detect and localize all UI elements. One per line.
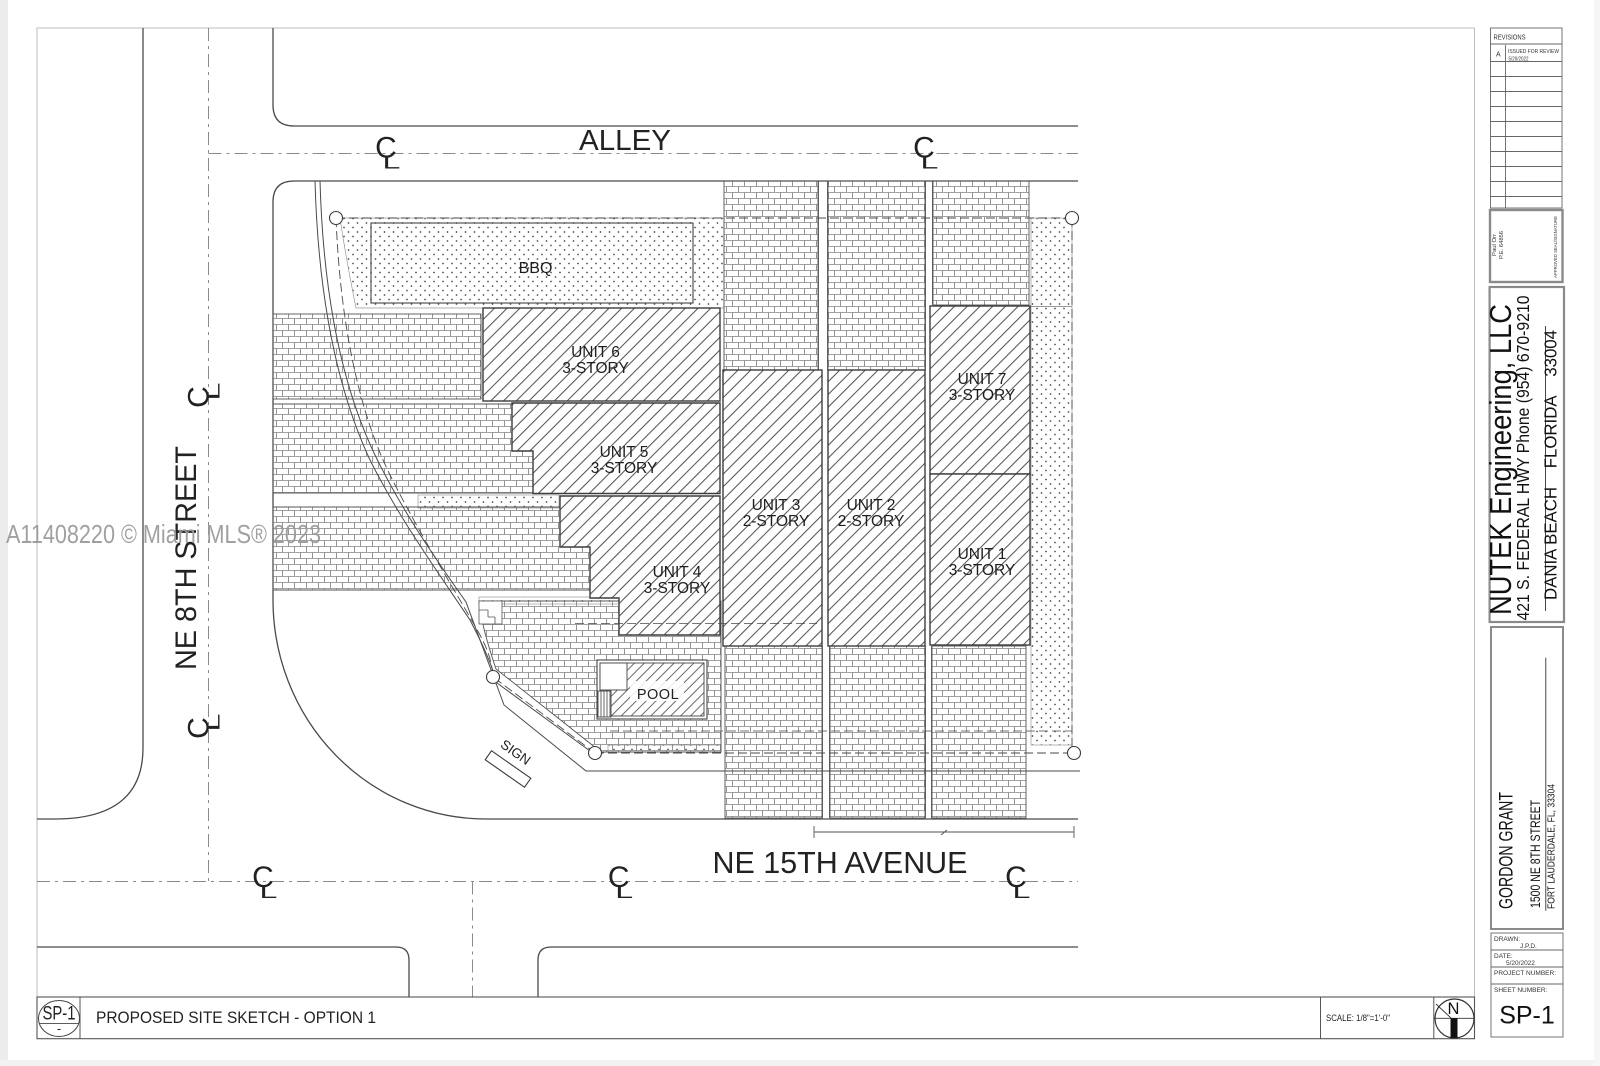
svg-text:2-STORY: 2-STORY — [743, 513, 810, 530]
svg-text:UNIT 3: UNIT 3 — [752, 497, 801, 514]
svg-text:UNIT 2: UNIT 2 — [847, 497, 896, 514]
svg-text:PROPOSED SITE SKETCH - OPTION: PROPOSED SITE SKETCH - OPTION 1 — [96, 1008, 376, 1027]
svg-text:DANIA BEACH FLORIDA 3300: DANIA BEACH FLORIDA 33004 — [1541, 330, 1561, 600]
svg-text:SHEET NUMBER:: SHEET NUMBER: — [1494, 987, 1548, 994]
svg-text:N: N — [1448, 1000, 1460, 1018]
svg-text:NE 15TH AVENUE: NE 15TH AVENUE — [713, 845, 968, 880]
svg-text:A11408220 © Miami MLS® 2023: A11408220 © Miami MLS® 2023 — [6, 519, 321, 549]
svg-text:GORDON GRANT: GORDON GRANT — [1497, 792, 1518, 909]
svg-text:BBQ: BBQ — [519, 260, 553, 277]
svg-text:ALLEY: ALLEY — [579, 125, 671, 157]
svg-text:421 S. FEDERAL HWY Phone (954): 421 S. FEDERAL HWY Phone (954) 670-9210 — [1513, 295, 1533, 620]
svg-text:ISSUED FOR REVIEW: ISSUED FOR REVIEW — [1508, 49, 1560, 55]
svg-text:3-STORY: 3-STORY — [644, 580, 711, 597]
svg-text:P.E. 64856: P.E. 64856 — [1499, 231, 1505, 259]
svg-text:UNIT 6: UNIT 6 — [571, 344, 620, 361]
svg-text:5/20/2022: 5/20/2022 — [1506, 960, 1535, 967]
svg-text:2-STORY: 2-STORY — [838, 513, 905, 530]
svg-text:NE 8TH STREET: NE 8TH STREET — [170, 446, 203, 670]
svg-text:REVISIONS: REVISIONS — [1494, 35, 1526, 42]
svg-text:3-STORY: 3-STORY — [949, 387, 1016, 404]
svg-text:Paul Orr: Paul Orr — [1492, 234, 1498, 256]
svg-text:APPROVED SEAL/SIGNATURE: APPROVED SEAL/SIGNATURE — [1553, 216, 1559, 278]
svg-text:3-STORY: 3-STORY — [949, 562, 1016, 579]
svg-text:1500 NE 8TH STREET: 1500 NE 8TH STREET — [1527, 800, 1543, 908]
svg-text:UNIT 7: UNIT 7 — [958, 371, 1007, 388]
svg-text:PROJECT NUMBER:: PROJECT NUMBER: — [1494, 970, 1556, 977]
svg-text:POOL: POOL — [637, 687, 679, 703]
svg-text:-: - — [57, 1021, 61, 1036]
svg-text:UNIT 1: UNIT 1 — [958, 546, 1007, 563]
svg-text:3-STORY: 3-STORY — [591, 460, 658, 477]
svg-text:UNIT 4: UNIT 4 — [653, 564, 702, 581]
svg-text:SP-1: SP-1 — [1499, 1002, 1555, 1030]
svg-text:A: A — [1496, 52, 1501, 59]
svg-text:FORT LAUDERDALE, FL, 33304: FORT LAUDERDALE, FL, 33304 — [1546, 784, 1558, 909]
svg-text:DATE:: DATE: — [1494, 953, 1513, 960]
svg-text:SCALE: 1/8"=1'-0": SCALE: 1/8"=1'-0" — [1326, 1013, 1390, 1024]
svg-text:DRAWN:: DRAWN: — [1494, 936, 1520, 943]
svg-text:J.P.D.: J.P.D. — [1520, 943, 1537, 950]
svg-text:UNIT 5: UNIT 5 — [600, 444, 649, 461]
svg-text:3-STORY: 3-STORY — [562, 360, 629, 377]
svg-text:5/20/2022: 5/20/2022 — [1509, 57, 1529, 63]
